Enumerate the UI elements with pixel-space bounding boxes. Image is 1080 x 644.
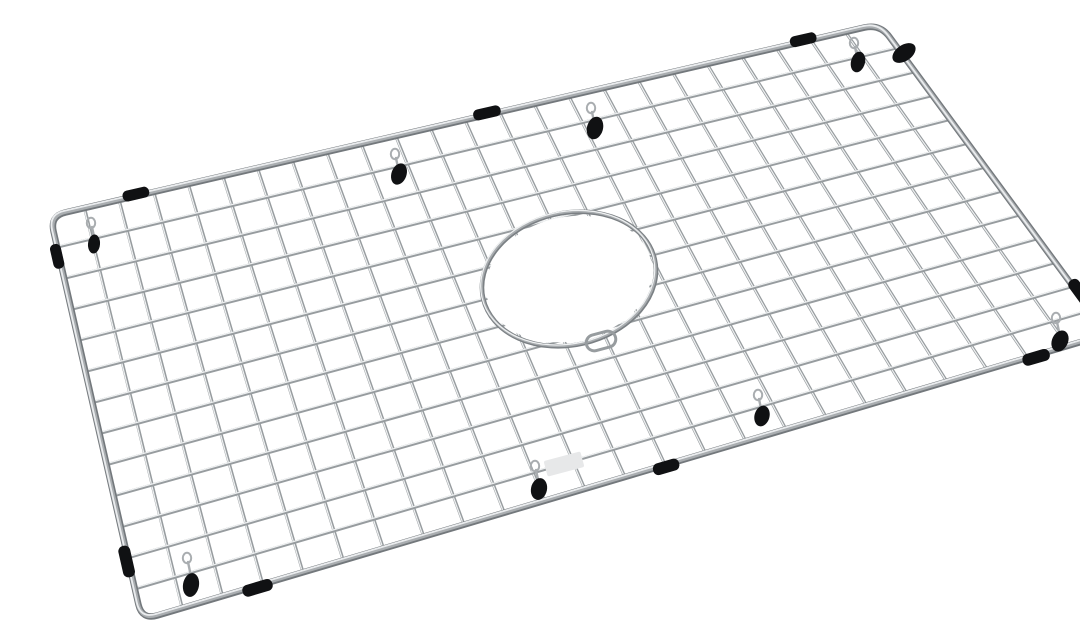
- grid-wires: [56, 31, 1080, 608]
- sink-grid: [49, 25, 1080, 616]
- grid-wire-horizontal: [78, 119, 951, 341]
- grid-wire-horizontal: [70, 95, 932, 310]
- grid-wire-horizontal: [56, 47, 897, 247]
- rubber-bumper: [651, 457, 680, 476]
- leg-wire-hook: [183, 553, 191, 574]
- rubber-bumper: [241, 578, 274, 598]
- grid-wire-horizontal: [63, 71, 915, 278]
- sink-grid-illustration: [40, 16, 1080, 628]
- rubber-bumper: [1021, 348, 1051, 367]
- rubber-bumper: [121, 186, 150, 203]
- rubber-bumper: [117, 545, 136, 579]
- product-photo: [40, 16, 1080, 628]
- grid-wire-horizontal: [99, 190, 1003, 433]
- rubber-bumpers: [49, 31, 1080, 598]
- rubber-foot: [849, 50, 868, 74]
- rubber-bumper: [472, 104, 502, 121]
- grid-wire-horizontal: [92, 166, 986, 402]
